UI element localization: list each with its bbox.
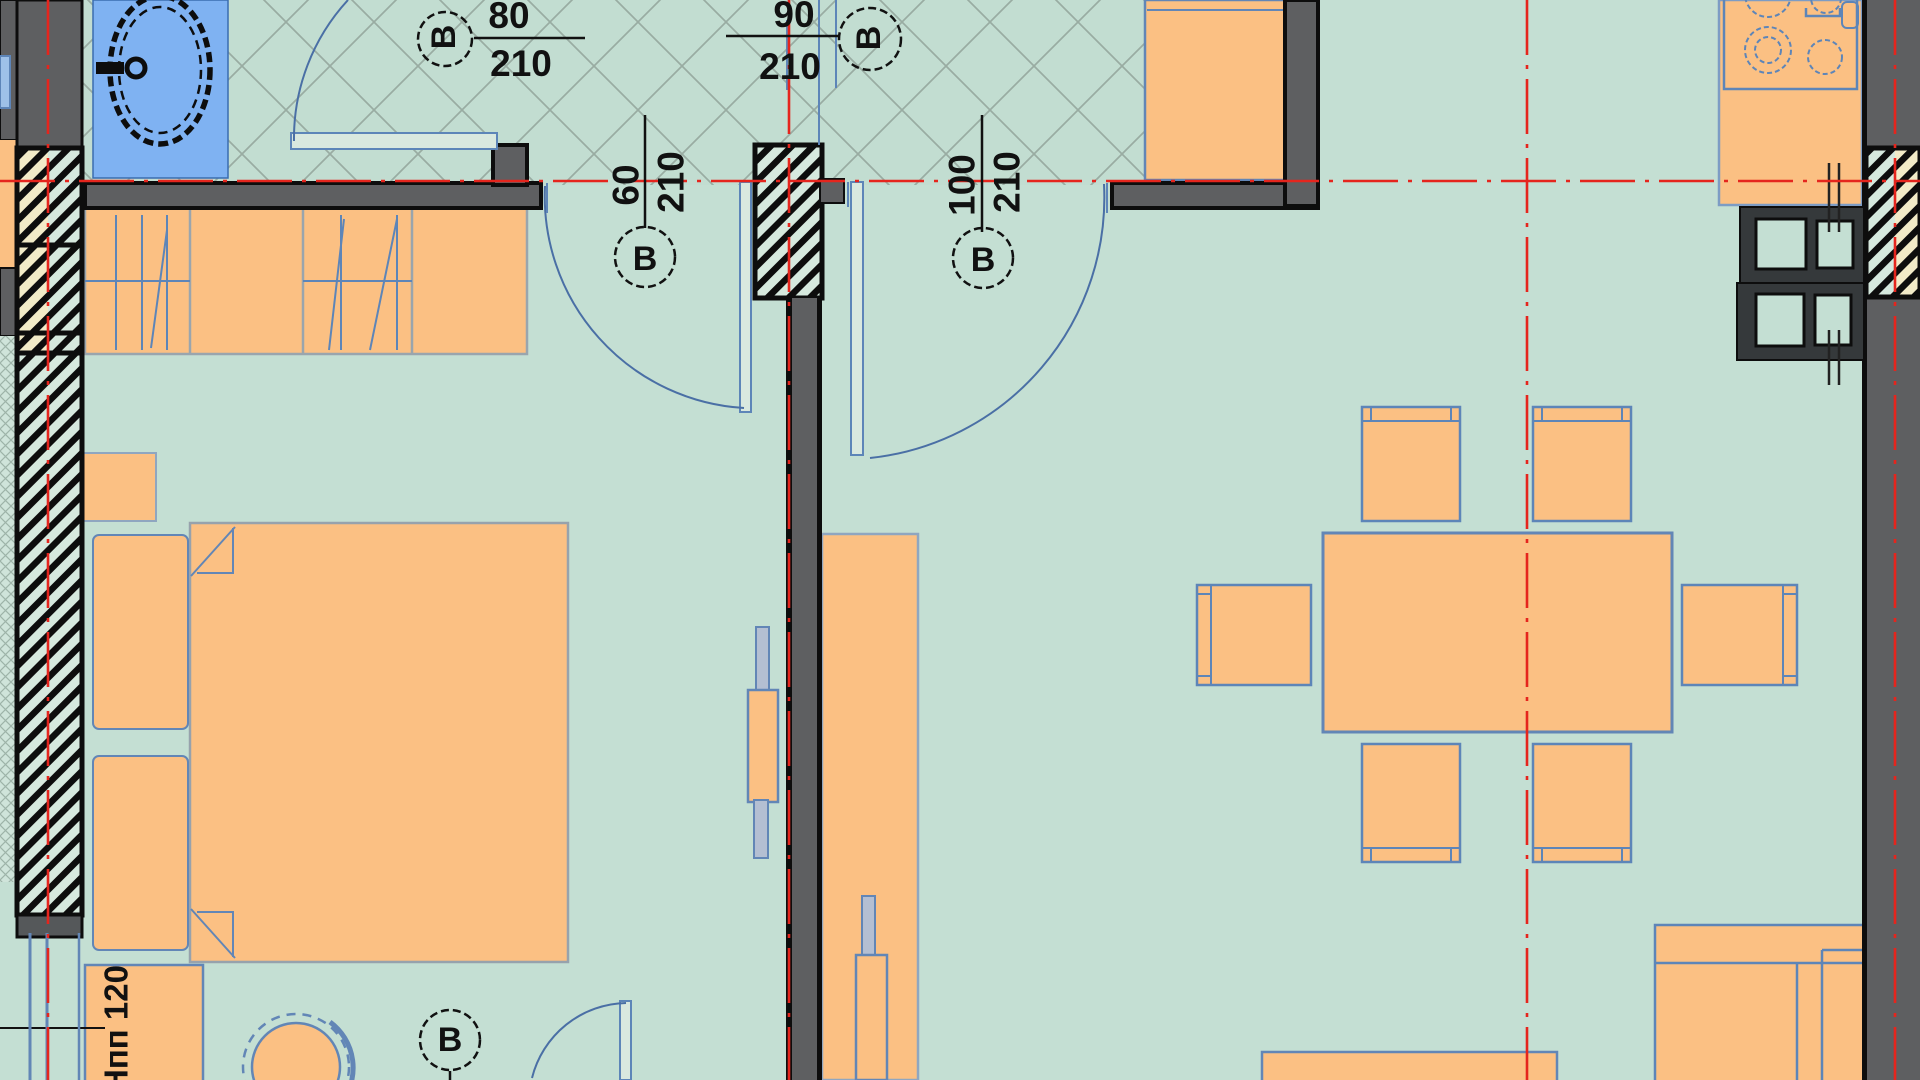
svg-text:80: 80 <box>488 0 529 36</box>
svg-text:210: 210 <box>759 46 821 87</box>
svg-text:B: B <box>633 240 658 278</box>
svg-text:210: 210 <box>987 151 1028 213</box>
svg-text:B: B <box>438 1021 463 1059</box>
svg-text:210: 210 <box>490 43 552 84</box>
svg-text:100: 100 <box>942 154 983 216</box>
svg-text:B: B <box>971 241 996 279</box>
svg-text:60: 60 <box>606 164 647 205</box>
svg-text:B: B <box>850 26 888 51</box>
svg-text:210: 210 <box>651 151 692 213</box>
svg-text:B: B <box>425 25 463 50</box>
svg-text:Нпп 120: Нпп 120 <box>98 965 135 1080</box>
svg-text:90: 90 <box>773 0 814 35</box>
